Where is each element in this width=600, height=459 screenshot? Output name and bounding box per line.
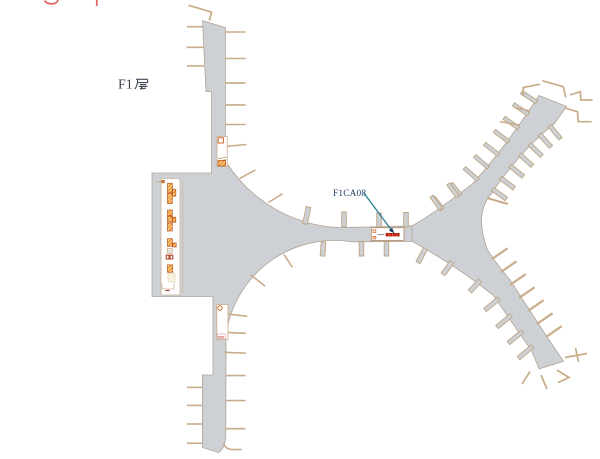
svg-text:F1: F1 [118, 78, 133, 93]
svg-text:F1CA08: F1CA08 [333, 189, 366, 199]
